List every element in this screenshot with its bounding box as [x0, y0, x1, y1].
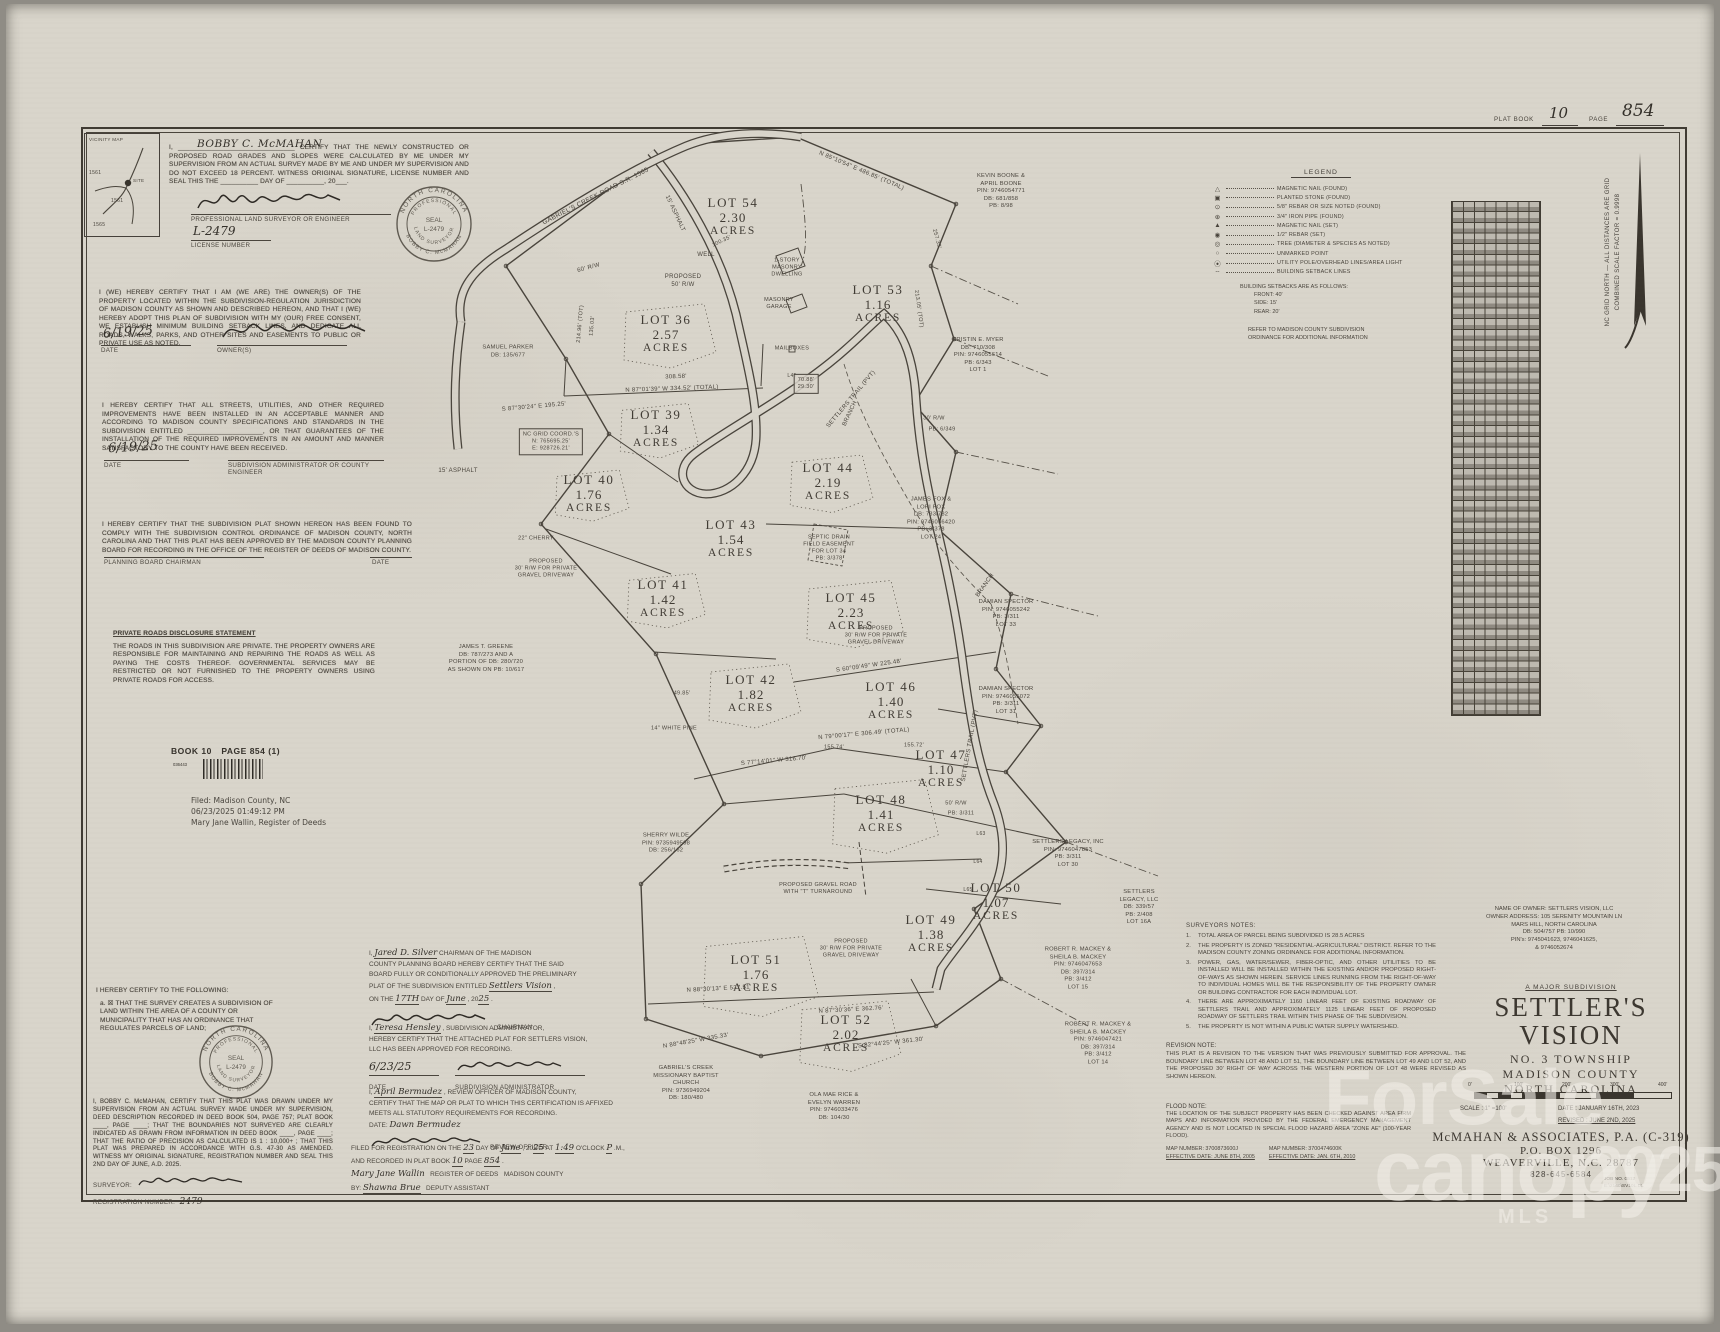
owner-info-line: NAME OF OWNER: SETTLERS VISION, LLC	[1454, 906, 1654, 914]
filed-line-2: 06/23/2025 01:49:12 PM	[191, 806, 326, 817]
registration-number-value: 2479	[180, 1197, 203, 1207]
svg-text:PROFESSIONAL: PROFESSIONAL	[410, 198, 458, 216]
legend-item: ⊙5/8" REBAR OR SIZE NOTED (FOUND)	[1212, 203, 1430, 212]
admin-text: I, Teresa Hensley , SUBDIVISION ADMINIST…	[369, 1022, 619, 1055]
cert-improvements: I HEREBY CERTIFY THAT ALL STREETS, UTILI…	[102, 402, 384, 453]
admin-signature	[455, 1057, 565, 1075]
improvements-date-fill: 6/19/25	[108, 439, 159, 457]
rich-line: AND RECORDED IN PLAT BOOK 10 PAGE 854 .	[351, 1155, 651, 1168]
registration-text: FILED FOR REGISTRATION ON THE 23 DAY OF …	[351, 1142, 651, 1195]
iron-pipe-found-icon: ⊕	[1212, 213, 1223, 221]
compliance-left-label: PLANNING BOARD CHAIRMAN	[104, 559, 201, 566]
surveyor-note: 1.TOTAL AREA OF PARCEL BEING SUBDIVIDED …	[1186, 933, 1436, 941]
flood-map-1: MAP NUMBER: 3700873600J EFFECTIVE DATE: …	[1166, 1145, 1255, 1161]
final-surveyor-signature	[136, 1173, 246, 1189]
surveyors-notes: SURVEYORS NOTES: 1.TOTAL AREA OF PARCEL …	[1186, 922, 1436, 1033]
rich-line: I, Teresa Hensley , SUBDIVISION ADMINIST…	[369, 1022, 619, 1035]
rich-line: CERTIFY THAT THE MAP OR PLAT TO WHICH TH…	[369, 1099, 649, 1109]
owner-info-line: MARS HILL, NORTH CAROLINA	[1454, 922, 1654, 930]
license-number-fill: L-2479	[193, 224, 236, 238]
compliance-right-line	[370, 557, 412, 558]
rich-line: LLC HAS BEEN APPROVED FOR RECORDING.	[369, 1045, 619, 1055]
tree-icon: ◎	[1212, 240, 1223, 248]
cert-road-grades: I, _______________________________ CERTI…	[169, 144, 469, 187]
watermark-year: 2025	[1588, 1132, 1720, 1206]
surveyor-seal-2: NORTH CAROLINA PROFESSIONAL LAND SURVEYO…	[197, 1023, 275, 1101]
legend-item: ▲MAGNETIC NAIL (SET)	[1212, 221, 1430, 230]
owner-signature	[219, 317, 369, 345]
cert-road-grades-line2-label: LICENSE NUMBER	[191, 242, 250, 249]
site-dot	[125, 180, 131, 186]
flood-map-2: MAP NUMBER: 3700474600K EFFECTIVE DATE: …	[1269, 1145, 1355, 1161]
private-roads-text: THE ROADS IN THIS SUBDIVISION ARE PRIVAT…	[113, 643, 375, 686]
legend-refer-note: REFER TO MADISON COUNTY SUBDIVISION ORDI…	[1248, 326, 1430, 343]
subdivision-kind: A MAJOR SUBDIVISION	[1446, 984, 1696, 991]
vicinity-roads	[85, 134, 159, 236]
setback-line: BUILDING SETBACKS ARE AS FOLLOWS:	[1240, 283, 1430, 291]
owner-info-line: PIN's: 9745041623, 9746041625,	[1454, 937, 1654, 945]
rich-line: ON THE 17TH DAY OF June , 2025 .	[369, 993, 599, 1006]
svg-text:L-2479: L-2479	[226, 1064, 246, 1071]
rich-line: BY: Shawna Brue DEPUTY ASSISTANT	[351, 1182, 651, 1195]
legend-item: ▣PLANTED STONE (FOUND)	[1212, 193, 1430, 202]
plat-book-blank-line	[1542, 125, 1578, 126]
compliance-left-line	[104, 557, 264, 558]
rich-line: BOARD FULLY OR CONDITIONALLY APPROVED TH…	[369, 970, 599, 980]
cert-final: I, BOBBY C. McMAHAN, CERTIFY THAT THIS P…	[93, 1099, 333, 1209]
certify-following-title: I HEREBY CERTIFY TO THE FOLLOWING:	[96, 987, 281, 996]
rebar-found-icon: ⊙	[1212, 203, 1223, 211]
vicinity-map: VICINITY MAP SITE 1561 1561 1565	[84, 133, 160, 237]
surveyor-note: 3.POWER, GAS, WATER/SEWER, FIBER-OPTIC, …	[1186, 960, 1436, 998]
legend: LEGEND △MAGNETIC NAIL (FOUND)▣PLANTED ST…	[1212, 169, 1430, 342]
rich-line: I, Jared D. Silver CHAIRMAN OF THE MADIS…	[369, 947, 599, 960]
unmarked-point-icon: ○	[1212, 250, 1223, 257]
subdivision-name-2: VISION	[1446, 1022, 1696, 1050]
surveyor-signature	[194, 186, 344, 216]
scanned-plat-document: { "header": { "plat_book_label": "PLAT B…	[0, 0, 1720, 1328]
owner-sig-label: OWNER(S)	[217, 347, 251, 354]
legend-item: ○UNMARKED POINT	[1212, 249, 1430, 258]
owner-info-line: & 9746052674	[1454, 945, 1654, 953]
grid-note-line1: NC GRID NORTH — ALL DISTANCES ARE GRID	[1604, 147, 1614, 357]
vicinity-road-1: 1561	[89, 170, 101, 176]
notes-title: SURVEYORS NOTES:	[1186, 922, 1436, 929]
license-line	[191, 240, 271, 241]
subdivision-name-1: SETTLER'S	[1446, 994, 1696, 1022]
north-arrow-icon	[1622, 150, 1658, 354]
legend-item: ⊕3/4" IRON PIPE (FOUND)	[1212, 212, 1430, 221]
legend-item: ◎TREE (DIAMETER & SPECIES AS NOTED)	[1212, 240, 1430, 249]
watermark-mls: MLS	[1498, 1206, 1552, 1229]
barcode	[203, 759, 263, 779]
chairman-cert: I, Jared D. Silver CHAIRMAN OF THE MADIS…	[369, 947, 599, 1031]
planted-stone-found-icon: ▣	[1212, 194, 1223, 202]
surveyor-note: 4.THERE ARE APPROXIMATELY 1160 LINEAR FE…	[1186, 999, 1436, 1022]
owner-date-label: DATE	[101, 347, 118, 354]
owner-date-line	[101, 345, 191, 346]
svg-text:SEAL: SEAL	[228, 1055, 245, 1062]
rich-line: HEREBY CERTIFY THAT THE ATTACHED PLAT FO…	[369, 1035, 619, 1045]
cert-compliance-text: I HEREBY CERTIFY THAT THE SUBDIVISION PL…	[102, 521, 412, 555]
improvements-sig-label: SUBDIVISION ADMINISTRATOR OR COUNTY ENGI…	[228, 462, 384, 476]
review-text: I, April Bermudez , REVIEW OFFICER OF MA…	[369, 1086, 649, 1132]
setback-line: REAR: 20'	[1254, 308, 1430, 316]
owner-info-line: OWNER ADDRESS: 105 SERENITY MOUNTAIN LN	[1454, 914, 1654, 922]
setback-line: FRONT: 40'	[1254, 291, 1430, 299]
line-table	[1451, 201, 1541, 716]
cert-final-text: I, BOBBY C. McMAHAN, CERTIFY THAT THIS P…	[93, 1099, 333, 1170]
rebar-set-icon: ◉	[1212, 231, 1223, 239]
revision-title: REVISION NOTE:	[1166, 1042, 1466, 1049]
improvements-sig-line	[228, 460, 384, 461]
rich-line: I, April Bermudez , REVIEW OFFICER OF MA…	[369, 1086, 649, 1099]
page-value: 854	[1622, 101, 1654, 121]
cert-owner: I (WE) HEREBY CERTIFY THAT I AM (WE ARE)…	[99, 289, 361, 349]
magnetic-nail-set-icon: ▲	[1212, 222, 1223, 229]
admin-cert: I, Teresa Hensley , SUBDIVISION ADMINIST…	[369, 1022, 619, 1094]
legend-item: △MAGNETIC NAIL (FOUND)	[1212, 184, 1430, 193]
vicinity-site-label: SITE	[133, 178, 144, 183]
vicinity-road-3: 1565	[93, 222, 105, 228]
owner-info-line: DB: 504/757 PB: 10/990	[1454, 929, 1654, 937]
owner-info-block: NAME OF OWNER: SETTLERS VISION, LLCOWNER…	[1454, 906, 1654, 953]
page-label: PAGE	[1589, 116, 1608, 123]
paper-sheet: PLAT BOOK 10 PAGE 854 VICINITY MAP SITE …	[6, 4, 1714, 1324]
book-page-stamp: BOOK 10 PAGE 854 (1)	[171, 746, 280, 756]
vicinity-title: VICINITY MAP	[89, 137, 123, 142]
surveyor-note: 5.THE PROPERTY IS NOT WITHIN A PUBLIC WA…	[1186, 1024, 1436, 1032]
rich-line: PLAT OF THE SUBDIVISION ENTITLED Settler…	[369, 980, 599, 993]
setback-line-icon: ╌	[1212, 268, 1223, 276]
rich-line: DATE: Dawn Bermudez	[369, 1119, 649, 1132]
compliance-right-label: DATE	[372, 559, 389, 566]
plat-book-label: PLAT BOOK	[1494, 116, 1534, 123]
legend-title: LEGEND	[1291, 169, 1351, 178]
magnetic-nail-found-icon: △	[1212, 185, 1223, 193]
private-roads-statement: PRIVATE ROADS DISCLOSURE STATEMENT THE R…	[113, 630, 375, 685]
cert-road-grades-text: I, _______________________________ CERTI…	[169, 144, 469, 187]
cert-road-grades-line1-label: PROFESSIONAL LAND SURVEYOR OR ENGINEER	[191, 216, 350, 223]
svg-text:L-2479: L-2479	[424, 226, 445, 233]
improvements-date-label: DATE	[104, 462, 121, 469]
cert-compliance: I HEREBY CERTIFY THAT THE SUBDIVISION PL…	[102, 521, 412, 555]
vicinity-road-2: 1561	[111, 198, 123, 204]
chairman-text: I, Jared D. Silver CHAIRMAN OF THE MADIS…	[369, 947, 599, 1007]
setback-line: SIDE: 15'	[1254, 299, 1430, 307]
svg-text:SEAL: SEAL	[426, 217, 443, 224]
page-blank-line	[1616, 125, 1664, 126]
admin-date-value: 6/23/25	[369, 1060, 411, 1073]
rich-line: MEETS ALL STATUTORY REQUIREMENTS FOR REC…	[369, 1109, 649, 1119]
private-roads-title: PRIVATE ROADS DISCLOSURE STATEMENT	[113, 630, 375, 639]
rich-line: FILED FOR REGISTRATION ON THE 23 DAY OF …	[351, 1142, 651, 1155]
owner-sig-line	[217, 345, 347, 346]
rich-line: COUNTY PLANNING BOARD HEREBY CERTIFY THA…	[369, 960, 599, 970]
legend-item: ⦿UTILITY POLE/OVERHEAD LINES/AREA LIGHT	[1212, 258, 1430, 267]
filed-line-3: Mary Jane Wallin, Register of Deeds	[191, 817, 326, 828]
surveyor-note: 2.THE PROPERTY IS ZONED "RESIDENTIAL-AGR…	[1186, 943, 1436, 958]
filed-stamp: Filed: Madison County, NC 06/23/2025 01:…	[191, 795, 326, 828]
surveyor-seal: NORTH CAROLINA PROFESSIONAL LAND SURVEYO…	[394, 184, 474, 264]
rich-line: Mary Jane Wallin REGISTER OF DEEDS MADIS…	[351, 1168, 651, 1181]
registration-number-label: REGISTRATION NUMBER:	[93, 1199, 175, 1206]
plat-book-value: 10	[1549, 104, 1568, 122]
legend-item: ╌BUILDING SETBACK LINES	[1212, 268, 1430, 277]
registration-block: FILED FOR REGISTRATION ON THE 23 DAY OF …	[351, 1142, 651, 1195]
svg-text:PROFESSIONAL: PROFESSIONAL	[213, 1036, 260, 1054]
recording-stamp: BOOK 10 PAGE 854 (1) 036443	[171, 746, 280, 756]
utility-pole-icon: ⦿	[1212, 258, 1223, 268]
improvements-date-line	[104, 460, 189, 461]
filed-line-1: Filed: Madison County, NC	[191, 795, 326, 806]
surveyor-label: SURVEYOR:	[93, 1182, 132, 1189]
legend-item: ◉1/2" REBAR (SET)	[1212, 230, 1430, 239]
cert-road-grades-name-fill: BOBBY C. McMAHAN	[197, 138, 322, 150]
barcode-number: 036443	[173, 762, 187, 767]
signature-line	[191, 214, 391, 215]
